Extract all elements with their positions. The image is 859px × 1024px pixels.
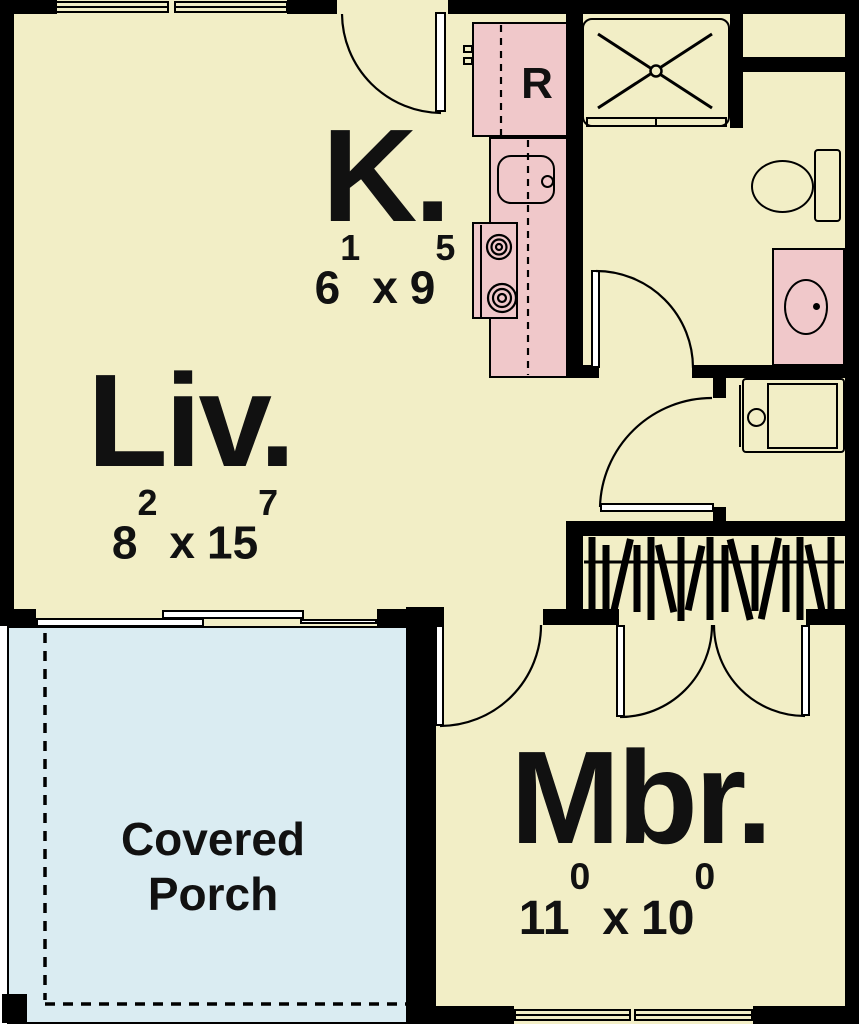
master-bedroom-dimensions: 110x100 [517, 886, 717, 943]
bathroom-door-swing [596, 271, 693, 368]
covered-porch-label: Covered Porch [63, 812, 363, 922]
closet-door-right-swing [714, 625, 805, 716]
living-room-dimensions: 82x157 [95, 513, 295, 565]
stove-burner-icon [487, 235, 516, 312]
closet-rod-and-hangers [584, 537, 844, 621]
floor-plan: K. 61x95 Liv. 82x157 Mbr. 110x100 Covere… [0, 0, 859, 1024]
front-door-swing [342, 14, 441, 113]
bedroom-door-swing [440, 625, 541, 726]
living-room-label: Liv. [40, 355, 340, 487]
kitchen-dimensions: 61x95 [285, 258, 485, 310]
master-bedroom-label: Mbr. [490, 732, 790, 864]
refrigerator-label: R [507, 62, 567, 106]
shower-x-icon [598, 34, 712, 108]
kitchen-label: K. [295, 110, 475, 242]
closet-door-left-swing [620, 625, 712, 717]
laundry-door-swing [600, 398, 712, 507]
